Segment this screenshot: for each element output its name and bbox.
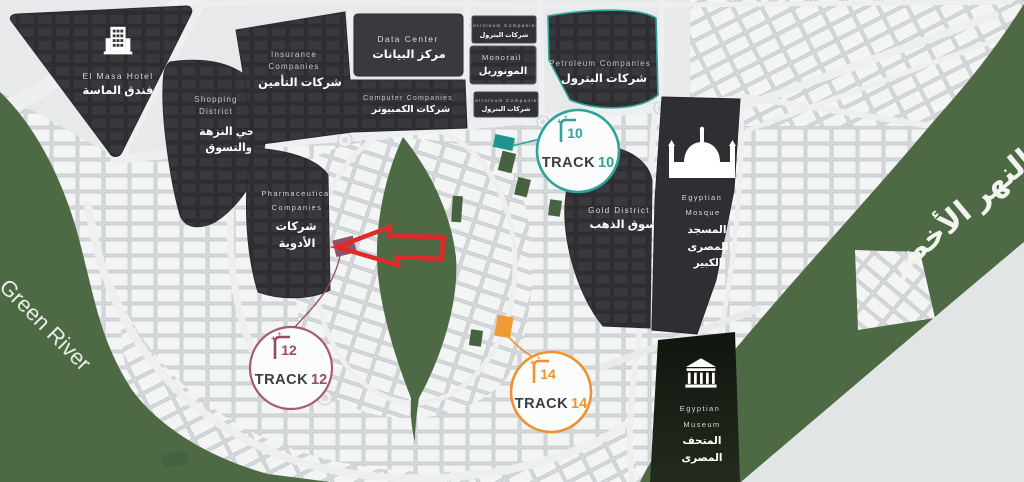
pharma-label-en-1: Pharmaceutical (261, 189, 332, 198)
svg-text:10: 10 (567, 125, 583, 141)
monorail-label-en: Monorail (482, 53, 522, 62)
svg-text:12: 12 (281, 342, 297, 358)
masterplan-map: El Masa Hotel فندق الماسة Shopping Distr… (0, 0, 1024, 482)
track10-label: TRACK10 (542, 155, 614, 171)
data-center-label-ar: مركز البيانات (372, 49, 445, 61)
marker-track14[interactable]: + + 14 TRACK14 (511, 352, 591, 432)
hotel-label-ar: فندق الماسة (83, 85, 154, 97)
gold-label-en: Gold District (588, 206, 650, 215)
petroleum-south-label-ar: شركات البترول (482, 106, 531, 113)
petroleum-north-label-ar: شركات البترول (480, 32, 529, 39)
track14-label: TRACK14 (515, 396, 587, 412)
museum-label-en-1: Egyptian (680, 404, 720, 413)
computer-label-en: Computer Companies (363, 95, 453, 102)
mosque-label-en-2: Mosque (685, 208, 720, 217)
mosque-label-ar-2: المصرى (687, 241, 728, 253)
petroleum-south-label-en: Petroleum Companies (471, 98, 541, 104)
mosque-label-ar-1: المسجد (688, 224, 727, 236)
district-monorail (470, 46, 536, 84)
pharma-label-ar-2: الأدوية (279, 236, 316, 251)
petroleum-north-label-en: Petroleum Companies (469, 23, 539, 29)
data-center-label-en: Data Center (377, 34, 438, 44)
petroleum-main-label-en: Petroleum Companies (549, 59, 651, 68)
svg-text:14: 14 (540, 366, 556, 382)
shopping-label-ar-2: والتسوق (205, 142, 252, 154)
gold-label-ar: سوق الذهب (589, 219, 656, 232)
insurance-label-ar: شركات التأمين (258, 74, 342, 89)
district-petroleum-south (474, 92, 538, 117)
marker-track12[interactable]: + + 12 TRACK12 (250, 327, 332, 409)
track12-label: TRACK12 (255, 372, 327, 388)
marker-track10[interactable]: + + 10 TRACK10 (537, 110, 619, 192)
museum-label-en-2: Museum (683, 420, 720, 429)
mosque-label-en-1: Egyptian (682, 193, 722, 202)
mosque-label-ar-3: الكبير (693, 257, 723, 269)
petroleum-main-label-ar: شركات البترول (561, 73, 647, 86)
shopping-label-en-2: District (199, 107, 233, 116)
insurance-label-en-2: Companies (268, 62, 319, 71)
computer-label-ar: شركات الكمبيوتر (371, 104, 450, 115)
museum-label-ar-2: المصرى (681, 452, 722, 464)
shopping-label-ar-1: حي النزهة (199, 126, 255, 138)
map-canvas: El Masa Hotel فندق الماسة Shopping Distr… (0, 0, 1024, 482)
insurance-label-en-1: Insurance (271, 50, 317, 59)
hotel-label-en: El Masa Hotel (82, 71, 153, 81)
monorail-label-ar: المونوريل (479, 66, 528, 77)
pharma-label-ar-1: شركات (275, 221, 316, 233)
shopping-label-en-1: Shopping (194, 95, 237, 104)
district-data-center (354, 14, 463, 76)
museum-label-ar-1: المتحف (683, 435, 722, 447)
pharma-label-en-2: Companies (272, 203, 323, 212)
